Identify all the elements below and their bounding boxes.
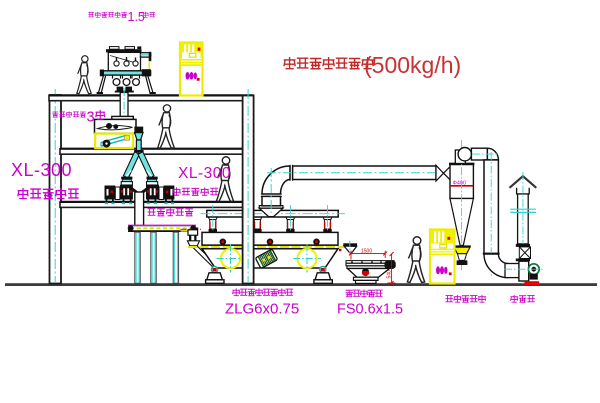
svg-text:1500: 1500	[361, 248, 372, 254]
svg-text:XL-300: XL-300	[178, 165, 231, 182]
svg-text:3: 3	[87, 110, 95, 126]
svg-text:1.5: 1.5	[128, 10, 145, 24]
svg-text:540: 540	[386, 270, 392, 279]
svg-text:ZLG6x0.75: ZLG6x0.75	[225, 301, 299, 318]
svg-text:Φ400: Φ400	[453, 181, 466, 187]
svg-text:(500kg/h): (500kg/h)	[364, 52, 461, 78]
svg-text:FS0.6x1.5: FS0.6x1.5	[337, 302, 403, 318]
svg-text:XL-300: XL-300	[11, 160, 72, 180]
